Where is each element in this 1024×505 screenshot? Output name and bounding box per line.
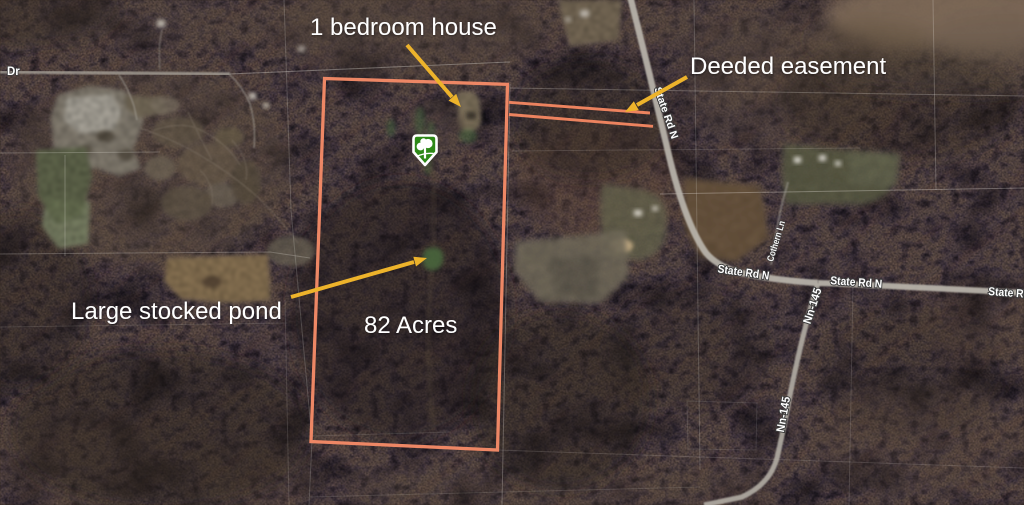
svg-text:82 Acres: 82 Acres — [364, 312, 457, 339]
svg-text:Dr: Dr — [7, 66, 20, 78]
svg-text:Deeded easement: Deeded easement — [690, 53, 886, 80]
svg-text:Large stocked pond: Large stocked pond — [71, 298, 282, 325]
svg-text:1 bedroom house: 1 bedroom house — [310, 14, 497, 41]
